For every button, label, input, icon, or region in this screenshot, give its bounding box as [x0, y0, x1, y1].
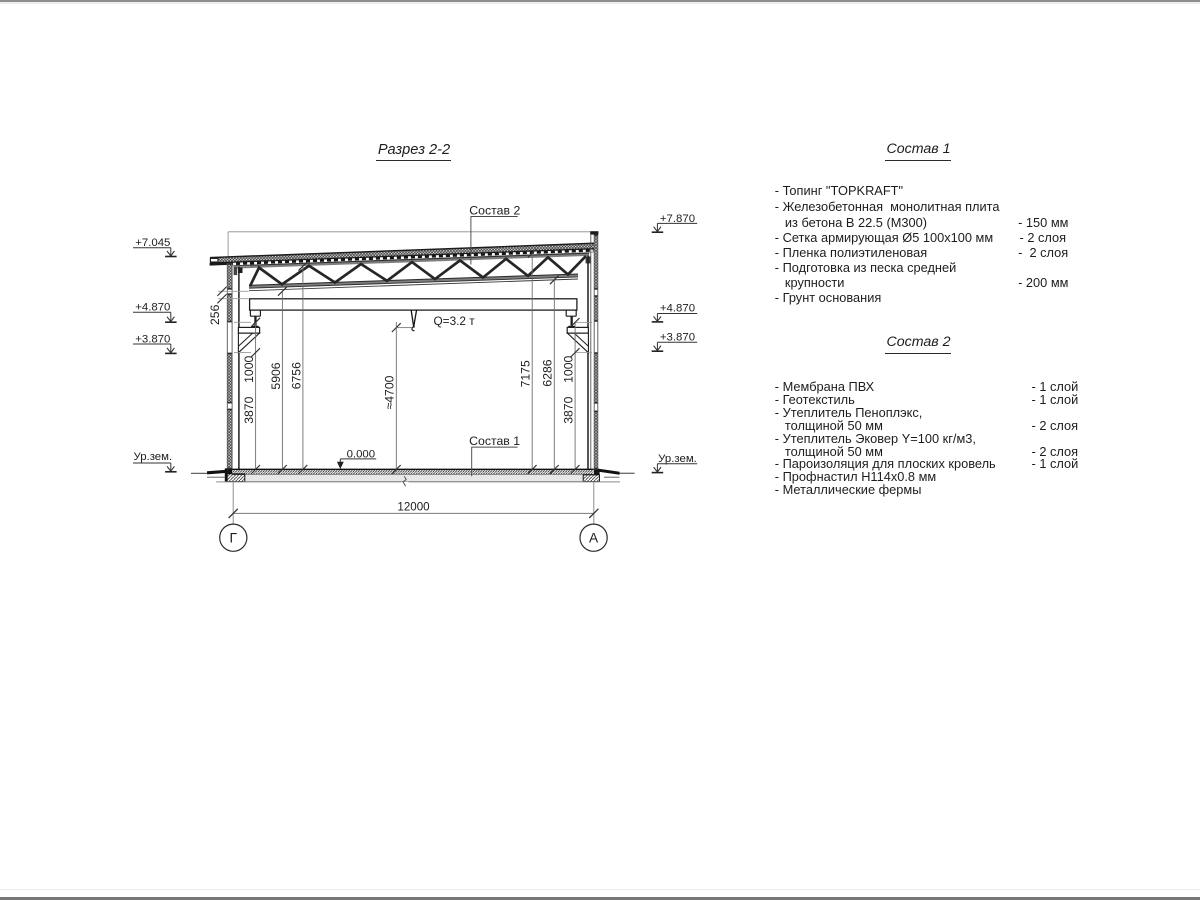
svg-text:6286: 6286 — [541, 359, 555, 386]
svg-text:5906: 5906 — [269, 362, 283, 389]
svg-text:Г: Г — [230, 531, 238, 546]
svg-text:Состав 2: Состав 2 — [469, 203, 520, 217]
svg-text:А: А — [589, 531, 599, 546]
svg-text:3870: 3870 — [242, 396, 256, 423]
svg-text:3870: 3870 — [562, 396, 576, 423]
svg-text:≈4700: ≈4700 — [383, 375, 397, 409]
svg-text:Q=3.2 т: Q=3.2 т — [434, 314, 476, 328]
svg-text:7175: 7175 — [519, 360, 533, 387]
svg-text:+4.870: +4.870 — [135, 301, 170, 313]
svg-text:256: 256 — [208, 304, 222, 325]
svg-text:Состав 1: Состав 1 — [469, 434, 520, 448]
svg-text:1000: 1000 — [242, 356, 256, 383]
svg-text:1000: 1000 — [562, 356, 576, 383]
svg-text:6756: 6756 — [289, 362, 303, 389]
svg-text:Ур.зем.: Ур.зем. — [658, 453, 697, 465]
svg-text:+4.870: +4.870 — [660, 303, 695, 315]
svg-text:12000: 12000 — [397, 501, 429, 514]
svg-text:Ур.зем.: Ур.зем. — [133, 451, 172, 463]
